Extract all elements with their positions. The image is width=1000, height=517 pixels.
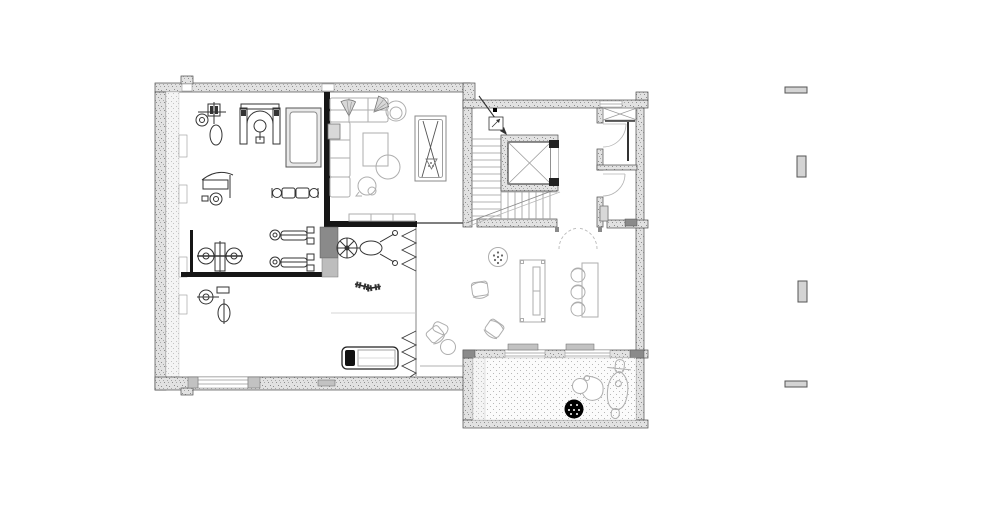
french-double-door bbox=[555, 227, 602, 249]
round-game-table bbox=[489, 248, 508, 267]
top-wall-notch bbox=[181, 76, 193, 84]
gym-south-wall bbox=[181, 272, 338, 277]
terrace-sill bbox=[508, 344, 538, 350]
lounge-south-wall bbox=[324, 221, 417, 227]
arrow-dot bbox=[493, 108, 497, 112]
stair-south-wall bbox=[477, 219, 557, 227]
bar-lounge bbox=[425, 248, 598, 355]
sideboard bbox=[349, 214, 415, 221]
sofa-chaise bbox=[330, 177, 350, 197]
left-wall-lining bbox=[166, 92, 179, 377]
terrace-sill bbox=[566, 344, 594, 350]
corner-pier-light bbox=[322, 258, 338, 277]
terrace-slider bbox=[565, 350, 610, 358]
elevator bbox=[501, 135, 559, 191]
bar-counter bbox=[520, 260, 545, 322]
terrace-nw-pier bbox=[463, 350, 475, 358]
top-wall-main bbox=[155, 83, 470, 92]
armchair bbox=[471, 281, 489, 300]
stair-west-wall bbox=[463, 108, 472, 227]
room-wall-seg1 bbox=[597, 108, 603, 123]
bench-press bbox=[197, 241, 243, 273]
floor-plan-drawing bbox=[0, 0, 1000, 517]
wall-niche bbox=[179, 295, 187, 314]
closet-and-wc bbox=[600, 108, 637, 221]
gym-wall-stub bbox=[190, 230, 193, 272]
bottom-wall-sill bbox=[318, 380, 335, 386]
round-armchair bbox=[386, 101, 406, 121]
top-right-notch bbox=[636, 92, 648, 100]
wall-block bbox=[625, 219, 637, 226]
top-wall-window bbox=[182, 84, 192, 91]
terrace-north-wall bbox=[463, 350, 648, 358]
wall-niche bbox=[179, 185, 187, 203]
wall-segment-marker-horizontal-bottom bbox=[785, 381, 807, 387]
stair-core bbox=[466, 96, 560, 226]
gym-equipment bbox=[196, 102, 398, 369]
throw-pillow-fan bbox=[341, 98, 359, 117]
closet-door bbox=[603, 124, 626, 147]
corner-pier bbox=[320, 227, 338, 258]
windows-openings bbox=[179, 84, 622, 388]
bike-pair bbox=[272, 188, 319, 198]
lounge-west-wall bbox=[324, 92, 330, 227]
treadmill bbox=[342, 347, 398, 369]
bottom-window-cap bbox=[248, 377, 260, 388]
terrace-slider bbox=[505, 350, 545, 358]
wall-niche bbox=[179, 135, 187, 157]
row-bench bbox=[270, 254, 314, 271]
ottoman bbox=[432, 321, 450, 336]
pec-deck-machine bbox=[202, 172, 233, 205]
wardrobe-x bbox=[603, 108, 637, 161]
floor-plan-canvas bbox=[0, 0, 1000, 517]
teardrop-chair bbox=[356, 177, 376, 196]
wall-segment-marker-vertical-upper bbox=[797, 156, 806, 177]
fixture-block bbox=[600, 206, 608, 221]
wall-segment-marker-vertical-lower bbox=[798, 281, 807, 302]
lounge-chair-group bbox=[425, 321, 456, 355]
elevator-door-gap bbox=[551, 147, 558, 179]
top-wall-window bbox=[322, 84, 334, 91]
lat-machine bbox=[197, 287, 230, 324]
bottom-window bbox=[198, 377, 248, 388]
black-dot-planter bbox=[565, 400, 584, 419]
bar-stools bbox=[571, 268, 585, 316]
terrace-edge-strip bbox=[473, 358, 485, 420]
side-table-round bbox=[441, 340, 456, 355]
elevator-jamb bbox=[549, 178, 559, 186]
terrace-ne-pier bbox=[630, 350, 644, 358]
exercise-mat bbox=[286, 108, 321, 167]
right-wall bbox=[636, 108, 644, 420]
wc-door bbox=[603, 174, 625, 196]
armchair bbox=[483, 318, 506, 341]
bottom-window-cap bbox=[188, 377, 198, 388]
cable-crossover-machine bbox=[337, 231, 398, 266]
multi-press-machine bbox=[240, 104, 280, 144]
side-markers bbox=[785, 87, 807, 387]
left-wall bbox=[155, 92, 166, 390]
wall-segment-marker-horizontal-top bbox=[785, 87, 807, 93]
bottom-wall-notch bbox=[181, 388, 193, 395]
row-bench bbox=[270, 227, 314, 244]
terrace bbox=[473, 358, 636, 420]
side-table bbox=[328, 124, 340, 139]
elevator-jamb bbox=[549, 140, 559, 148]
terrace-south-wall bbox=[463, 420, 648, 428]
pulldown-machine bbox=[196, 102, 226, 145]
closet-partition bbox=[627, 122, 629, 161]
lounge-furniture bbox=[328, 96, 446, 221]
staircase-upper-run bbox=[472, 135, 501, 219]
terrace-west-wall bbox=[463, 358, 473, 420]
dumbbells bbox=[354, 281, 381, 292]
glass-partition-zigzag bbox=[402, 331, 416, 377]
glass-partition-zigzag bbox=[402, 229, 416, 271]
coffee-table-square bbox=[363, 133, 388, 166]
room-mid-wall bbox=[597, 165, 637, 170]
billiard-table bbox=[415, 116, 446, 181]
